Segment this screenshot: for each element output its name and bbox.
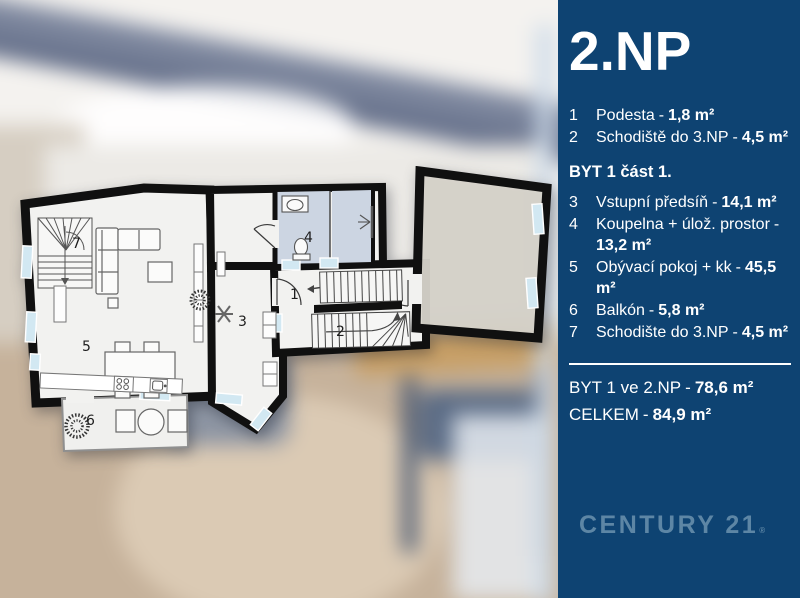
- room-number: 7: [569, 322, 596, 343]
- room-label: Koupelna + úlož. prostor-13,2 m²: [596, 214, 792, 256]
- total-row: BYT 1 ve 2.NP-78,6 m²: [569, 377, 792, 399]
- room-label: Obývací pokoj + kk-45,5 m²: [596, 257, 792, 299]
- info-panel: 2.NP 1Podesta-1,8 m²2Schodiště do 3.NP-4…: [558, 0, 800, 598]
- room-number: 2: [569, 127, 596, 148]
- legend-row: 2Schodiště do 3.NP-4,5 m²: [569, 127, 792, 148]
- common-rooms-list: 1Podesta-1,8 m²2Schodiště do 3.NP-4,5 m²: [569, 105, 792, 148]
- legend-row: 6Balkón-5,8 m²: [569, 300, 792, 321]
- total-row: CELKEM-84,9 m²: [569, 404, 792, 426]
- room-number: 3: [569, 192, 596, 213]
- legend-row: 3Vstupní předsíň-14,1 m²: [569, 192, 792, 213]
- plan-room-number-2: 2: [336, 324, 345, 340]
- legend-row: 1Podesta-1,8 m²: [569, 105, 792, 126]
- apartment-rooms-list: 3Vstupní předsíň-14,1 m²4Koupelna + úlož…: [569, 192, 792, 343]
- screenshot-root: 7 5 6 3 4 1 2 2.NP 1Podesta-1,8 m²2Schod…: [0, 0, 800, 598]
- balcony-door-opening: [66, 394, 94, 403]
- stairs-lower-flight: [312, 312, 411, 349]
- plan-room-number-4: 4: [304, 230, 313, 246]
- coffee-table: [148, 262, 172, 282]
- stove: [114, 376, 134, 392]
- stairs-upper-flight: [320, 270, 403, 303]
- legend-row: 7Schodište do 3.NP-4,5 m²: [569, 322, 792, 343]
- page-title: 2.NP: [569, 24, 792, 79]
- room-number: 1: [569, 105, 596, 126]
- room-label: Podesta-1,8 m²: [596, 105, 714, 126]
- brand-name: CENTURY 21: [579, 511, 758, 539]
- total-label: CELKEM-84,9 m²: [569, 405, 711, 424]
- room-label: Schodište do 3.NP-4,5 m²: [596, 322, 788, 343]
- section-title: BYT 1 část 1.: [569, 162, 792, 183]
- plan-room-number-6: 6: [86, 413, 95, 429]
- legend-row: 5Obývací pokoj + kk-45,5 m²: [569, 257, 792, 299]
- plan-room-number-3: 3: [238, 314, 247, 330]
- legend-row: 4Koupelna + úlož. prostor-13,2 m²: [569, 214, 792, 256]
- totals-list: BYT 1 ve 2.NP-78,6 m²CELKEM-84,9 m²: [569, 377, 792, 426]
- total-label: BYT 1 ve 2.NP-78,6 m²: [569, 378, 753, 397]
- floor-plan: 7 5 6 3 4 1 2: [20, 166, 555, 458]
- brand-logo: CENTURY 21®: [579, 511, 765, 540]
- room-number: 4: [569, 214, 596, 256]
- room-label: Vstupní předsíň-14,1 m²: [596, 192, 777, 213]
- room-number: 5: [569, 257, 596, 299]
- stairs-room7: [38, 218, 92, 288]
- room-number: 6: [569, 300, 596, 321]
- balcony-furniture: [116, 409, 187, 435]
- registered-mark: ®: [759, 526, 765, 535]
- plan-room-number-5: 5: [82, 339, 91, 355]
- room-label: Schodiště do 3.NP-4,5 m²: [596, 127, 788, 148]
- room-label: Balkón-5,8 m²: [596, 300, 705, 321]
- plan-room-number-7: 7: [72, 236, 81, 252]
- plan-room-number-1: 1: [290, 287, 299, 303]
- divider-line: [569, 363, 791, 365]
